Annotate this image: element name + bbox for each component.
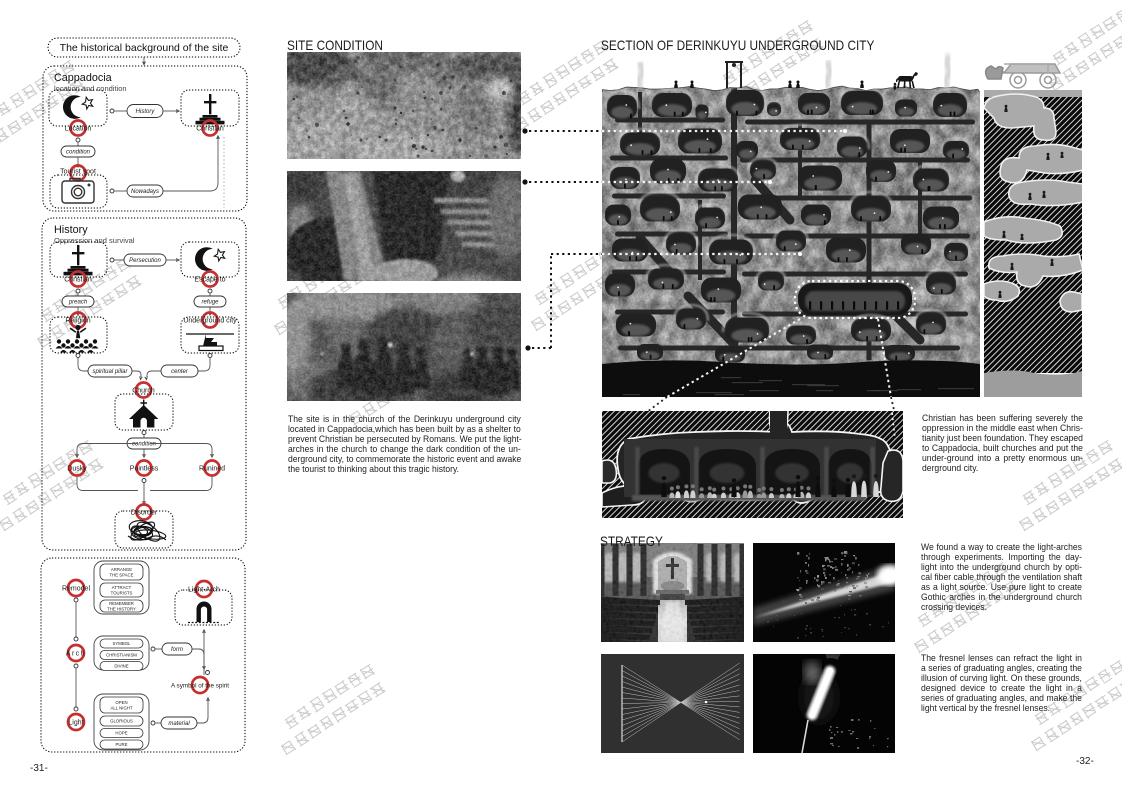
svg-text:REMEMBER: REMEMBER xyxy=(109,601,134,606)
svg-text:THE SPACE: THE SPACE xyxy=(109,572,133,577)
svg-text:Dusky: Dusky xyxy=(67,466,87,473)
svg-text:SYMBOL: SYMBOL xyxy=(113,641,132,646)
svg-text:GLORIOUS: GLORIOUS xyxy=(110,719,133,724)
svg-text:refuge: refuge xyxy=(201,300,219,306)
svg-text:Religion: Religion xyxy=(65,318,90,325)
svg-text:Pointless: Pointless xyxy=(130,466,159,473)
svg-text:center: center xyxy=(171,369,189,375)
svg-text:spiritual pillar: spiritual pillar xyxy=(92,369,128,375)
svg-text:A symbol of the spirit: A symbol of the spirit xyxy=(171,683,229,690)
svg-text:History: History xyxy=(54,224,88,236)
svg-text:Arch: Arch xyxy=(66,651,86,658)
svg-text:Remodel: Remodel xyxy=(62,586,90,593)
svg-text:location and condition: location and condition xyxy=(54,84,127,93)
svg-text:The historical background of t: The historical background of the site xyxy=(60,42,229,54)
svg-text:THE HISTORY: THE HISTORY xyxy=(107,606,136,611)
svg-text:Runined: Runined xyxy=(199,466,225,473)
svg-text:PURE: PURE xyxy=(116,742,128,747)
svg-text:TOURISTS: TOURISTS xyxy=(111,590,133,595)
svg-text:form: form xyxy=(171,647,183,653)
svg-text:ARRANGE: ARRANGE xyxy=(111,567,132,572)
svg-text:DIVINE: DIVINE xyxy=(114,664,128,669)
svg-text:Nowadays: Nowadays xyxy=(131,189,159,195)
svg-text:Persecution: Persecution xyxy=(129,258,161,264)
svg-text:condition: condition xyxy=(132,442,157,448)
svg-text:Church: Church xyxy=(132,388,155,395)
svg-text:History: History xyxy=(136,109,156,115)
svg-text:Cappadocia: Cappadocia xyxy=(54,72,112,84)
svg-text:condition: condition xyxy=(66,150,91,156)
svg-text:Christian: Christian xyxy=(196,126,224,133)
svg-text:Escape to: Escape to xyxy=(194,277,225,284)
svg-text:HOPE: HOPE xyxy=(115,731,127,736)
svg-text:ALL NIGHT: ALL NIGHT xyxy=(110,705,132,710)
svg-text:Underground city: Underground city xyxy=(183,318,237,325)
svg-text:Oppression and survival: Oppression and survival xyxy=(54,236,135,245)
svg-text:OPEN: OPEN xyxy=(115,700,127,705)
svg-text:material: material xyxy=(168,721,190,727)
svg-text:Light: Light xyxy=(68,720,83,727)
svg-text:ATTRACT: ATTRACT xyxy=(112,585,132,590)
svg-text:Tourist spot: Tourist spot xyxy=(60,169,96,176)
svg-text:Christian: Christian xyxy=(64,277,92,284)
svg-text:preach: preach xyxy=(68,300,88,306)
svg-text:CHRISTIANISM: CHRISTIANISM xyxy=(106,653,137,658)
svg-text:Location: Location xyxy=(65,126,92,133)
